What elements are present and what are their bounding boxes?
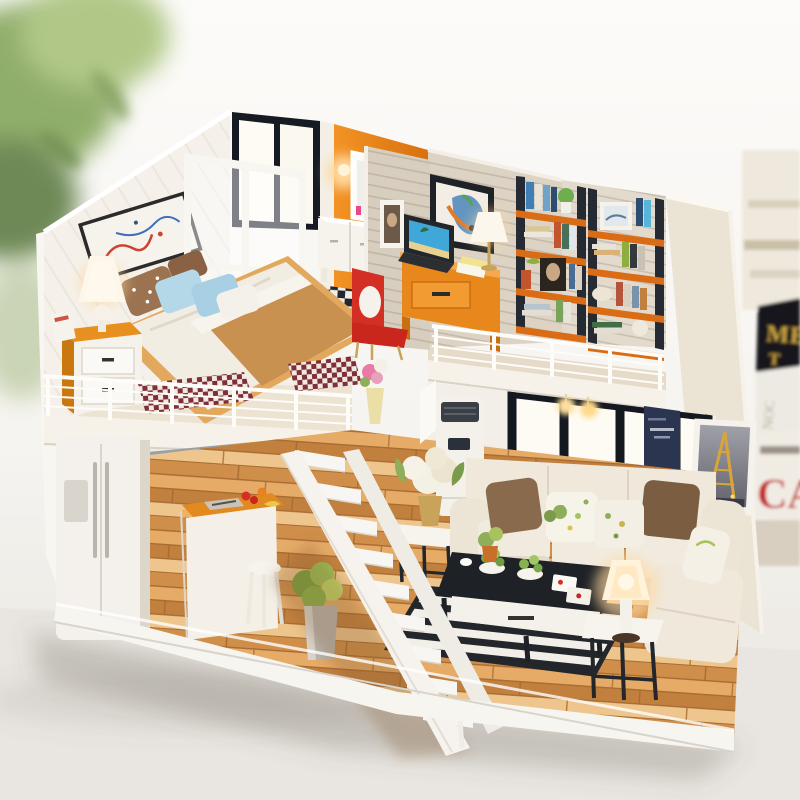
scene-svg: ME T NOC CA xyxy=(0,0,800,800)
shelf-plant xyxy=(558,188,574,204)
red-book-letters: CA xyxy=(757,472,800,518)
black-book-letters-1: ME xyxy=(765,321,800,350)
floral-pillow-2 xyxy=(594,500,644,548)
cup xyxy=(460,558,472,566)
shelf-frame-photo xyxy=(600,202,632,230)
black-book-letters-2: T xyxy=(768,349,781,369)
round-vase xyxy=(632,320,648,336)
small-photo-frame xyxy=(380,200,404,248)
wall-sconce xyxy=(338,164,350,176)
photo-recreation: ME T NOC CA xyxy=(0,0,800,800)
shell-decor xyxy=(592,287,612,301)
pale-book-text: NOC xyxy=(761,400,779,431)
perfume-bottle xyxy=(356,206,361,215)
navy-poster xyxy=(644,406,680,476)
